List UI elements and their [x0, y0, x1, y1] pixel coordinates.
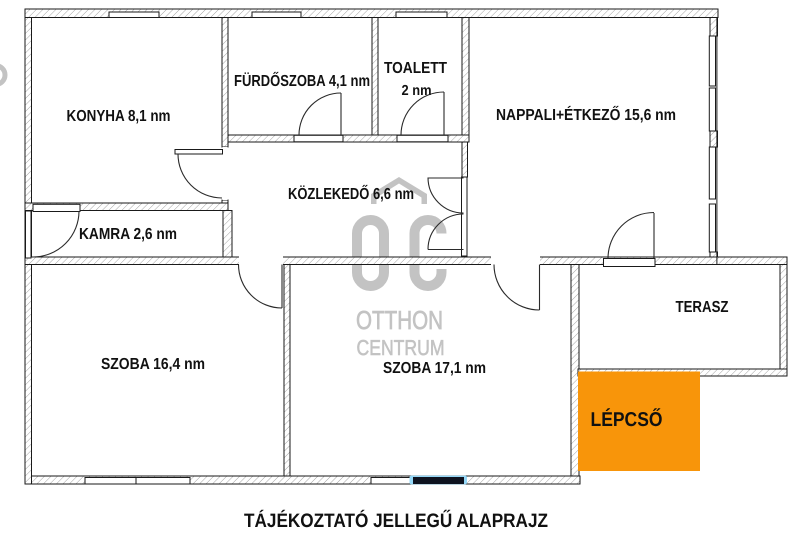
svg-text:NAPPALI+ÉTKEZŐ 15,6 nm: NAPPALI+ÉTKEZŐ 15,6 nm: [496, 105, 676, 124]
svg-text:CENTRUM: CENTRUM: [357, 336, 445, 360]
svg-text:KAMRA 2,6 nm: KAMRA 2,6 nm: [79, 226, 177, 243]
svg-text:FÜRDŐSZOBA 4,1 nm: FÜRDŐSZOBA 4,1 nm: [234, 71, 370, 90]
svg-text:SZOBA 17,1 nm: SZOBA 17,1 nm: [383, 360, 486, 377]
svg-text:SZOBA 16,4 nm: SZOBA 16,4 nm: [101, 356, 205, 373]
svg-text:OTTHON: OTTHON: [356, 305, 443, 335]
svg-text:2 nm: 2 nm: [402, 83, 432, 99]
svg-text:TERASZ: TERASZ: [676, 299, 729, 316]
svg-text:KONYHA 8,1 nm: KONYHA 8,1 nm: [67, 108, 171, 125]
svg-text:LÉPCSŐ: LÉPCSŐ: [591, 408, 663, 431]
svg-text:TOALETT: TOALETT: [384, 60, 447, 77]
svg-text:KÖZLEKEDŐ 6,6 nm: KÖZLEKEDŐ 6,6 nm: [288, 184, 414, 203]
svg-text:TÁJÉKOZTATÓ JELLEGŰ ALAPRAJZ: TÁJÉKOZTATÓ JELLEGŰ ALAPRAJZ: [244, 509, 548, 532]
